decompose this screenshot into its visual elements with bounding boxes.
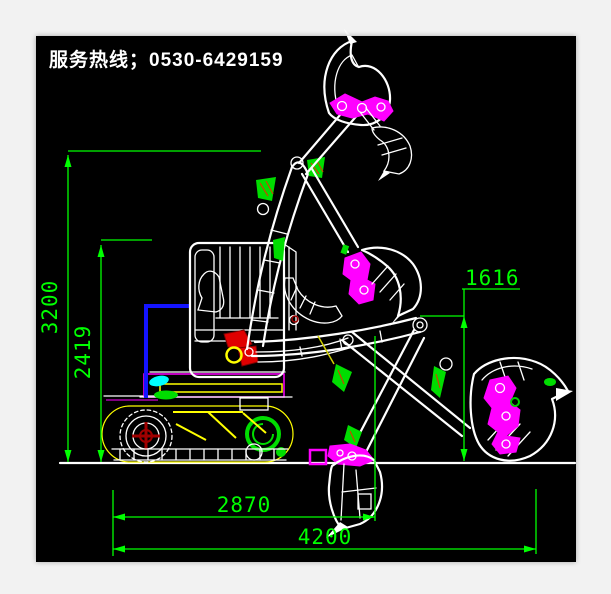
- dim-2419-label: 2419: [71, 325, 95, 380]
- screenshot-frame: 3200 2419 1616 2870 4200 服务热线；0530-64291…: [0, 0, 611, 594]
- hotline-text: 服务热线；0530-6429159: [49, 48, 284, 71]
- dim-3200-label: 3200: [38, 280, 62, 335]
- dim-1616-label: 1616: [465, 266, 520, 290]
- cad-drawing: 3200 2419 1616 2870 4200 服务热线；0530-64291…: [0, 0, 611, 594]
- dim-2870-label: 2870: [217, 493, 272, 517]
- dim-4200-label: 4200: [298, 525, 353, 549]
- bracket-green: [154, 391, 178, 400]
